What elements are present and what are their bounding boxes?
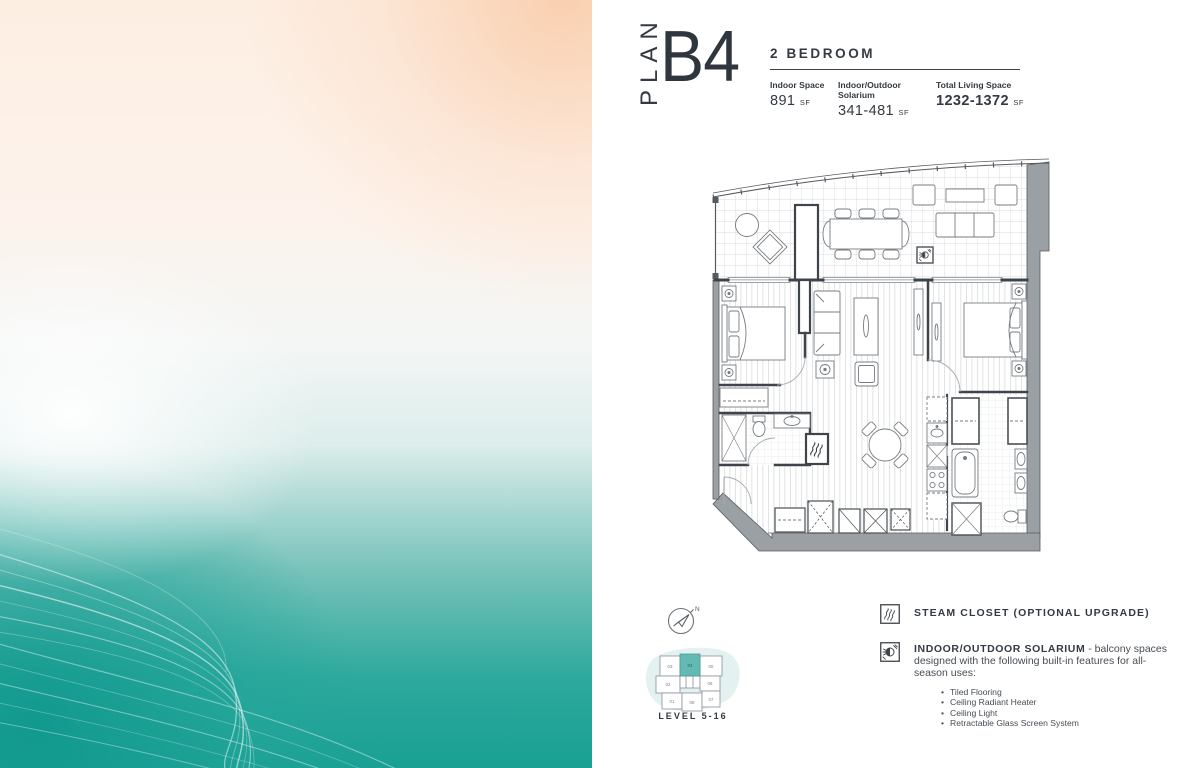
- stat-value-number: 891: [770, 93, 795, 109]
- floor-plan-drawing: [680, 155, 1080, 565]
- legend-steam-closet: STEAM CLOSET (OPTIONAL UPGRADE): [880, 604, 1180, 624]
- stat-indoor-space: Indoor Space 891 SF: [770, 80, 838, 119]
- plan-meta: 2 BEDROOM Indoor Space 891 SF Indoor/Out…: [770, 46, 1038, 119]
- wave-lines-graphic: [0, 0, 592, 768]
- stat-value: 341-481 SF: [838, 103, 936, 119]
- stat-total-living: Total Living Space 1232-1372 SF: [936, 80, 1024, 119]
- legend-steam-title: STEAM CLOSET (OPTIONAL UPGRADE): [914, 604, 1150, 623]
- stat-value-number: 1232-1372: [936, 93, 1009, 109]
- brand-artwork: [0, 0, 592, 768]
- plan-type: 2 BEDROOM: [770, 46, 1038, 61]
- stat-solarium: Indoor/Outdoor Solarium 341-481 SF: [838, 80, 936, 119]
- stat-value-number: 341-481: [838, 103, 894, 119]
- kitchen: [927, 397, 947, 519]
- stat-value: 891 SF: [770, 93, 838, 109]
- keyplan: 03 04 05 02 06 01 08 07: [637, 642, 749, 716]
- keyplan-unit-label: 04: [688, 663, 693, 668]
- keyplan-unit-label: 01: [670, 699, 675, 704]
- level-label: LEVEL 5-16: [637, 711, 749, 721]
- stat-label: Indoor Space: [770, 80, 838, 90]
- stat-label: Indoor/Outdoor Solarium: [838, 80, 936, 100]
- window-sills: [728, 277, 1002, 282]
- keyplan-unit-label: 02: [666, 682, 671, 687]
- keyplan-unit-label: 03: [668, 664, 673, 669]
- header-rule: [770, 69, 1020, 70]
- solarium-icon: [880, 642, 900, 662]
- keyplan-unit-label: 08: [690, 700, 695, 705]
- keyplan-unit-label: 06: [708, 681, 713, 686]
- compass-north-label: N: [695, 606, 700, 613]
- legend-solarium-title: INDOOR/OUTDOOR SOLARIUM: [914, 643, 1085, 655]
- solarium-feature-item: Ceiling Radiant Heater: [941, 697, 1170, 707]
- legend-solarium: INDOOR/OUTDOOR SOLARIUM - balcony spaces…: [880, 642, 1180, 729]
- solarium-feature-item: Tiled Flooring: [941, 687, 1170, 697]
- stat-label: Total Living Space: [936, 80, 1024, 90]
- legend-solarium-text: INDOOR/OUTDOOR SOLARIUM - balcony spaces…: [914, 643, 1170, 729]
- plan-stats: Indoor Space 891 SF Indoor/Outdoor Solar…: [770, 80, 1038, 119]
- compass-icon: N: [662, 600, 702, 640]
- floorplan-page: PLAN B4 2 BEDROOM Indoor Space 891 SF In…: [0, 0, 1186, 768]
- plan-code: B4: [660, 21, 739, 93]
- keyplan-unit-label: 07: [709, 697, 714, 702]
- stat-unit: SF: [898, 108, 909, 117]
- steam-icon: [880, 604, 900, 624]
- stat-value: 1232-1372 SF: [936, 93, 1024, 109]
- stat-unit: SF: [1013, 98, 1024, 107]
- solarium-feature-list: Tiled Flooring Ceiling Radiant Heater Ce…: [941, 687, 1170, 729]
- solarium-feature-item: Retractable Glass Screen System: [941, 718, 1170, 728]
- keyplan-unit-label: 05: [709, 664, 714, 669]
- stat-unit: SF: [800, 98, 811, 107]
- legend: STEAM CLOSET (OPTIONAL UPGRADE) INDOOR/O…: [880, 604, 1180, 729]
- solarium-feature-item: Ceiling Light: [941, 708, 1170, 718]
